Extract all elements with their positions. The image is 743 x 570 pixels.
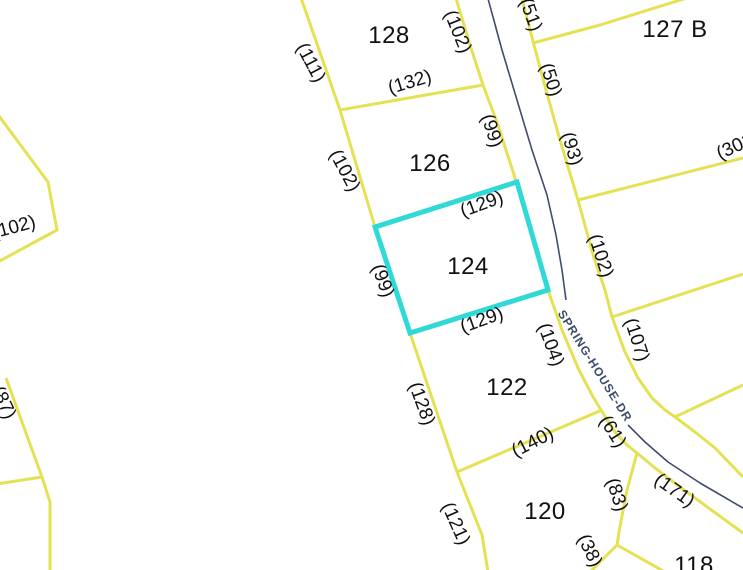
- parcel-label-122[interactable]: 122: [486, 374, 528, 402]
- parcel-boundary-line: [617, 545, 665, 570]
- parcel-map-canvas[interactable]: 128126124122120118127 B(111)(102)(99)(12…: [0, 0, 743, 570]
- parcel-boundary-line: [675, 385, 743, 417]
- parcel-label-126[interactable]: 126: [409, 150, 451, 178]
- parcel-boundary-line: [612, 274, 743, 317]
- parcel-label-118[interactable]: 118: [674, 552, 714, 570]
- parcel-label-128[interactable]: 128: [368, 22, 410, 50]
- parcel-label-127-B[interactable]: 127 B: [642, 16, 707, 44]
- parcel-boundary-line: [578, 158, 743, 200]
- parcel-label-124[interactable]: 124: [447, 253, 489, 281]
- road-centerline: [487, 0, 566, 300]
- parcel-boundary-line: [0, 477, 42, 484]
- parcel-label-120[interactable]: 120: [524, 498, 566, 526]
